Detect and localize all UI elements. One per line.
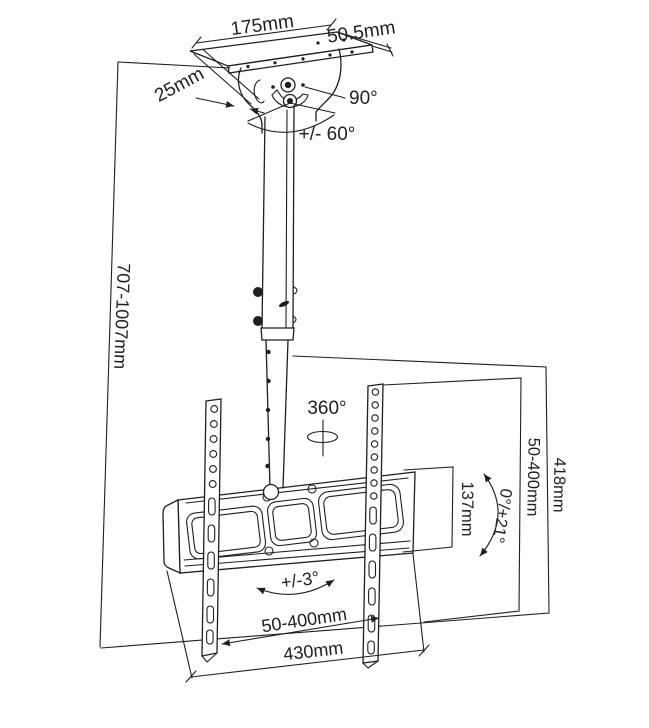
label-bracket-total-height: 418mm <box>550 457 569 512</box>
note-screen-tilt: 0°/+21° <box>480 474 515 556</box>
telescopic-pole <box>253 107 297 500</box>
right-vesa-rail <box>363 384 383 668</box>
label-joint-angle: 90° <box>349 88 378 109</box>
label-vesa-width-range: 50-400mm <box>260 604 348 636</box>
note-joint-angle: 90° <box>305 87 378 109</box>
label-vesa-height-range: 50-400mm <box>523 437 542 516</box>
label-tilt-range-top: +/- 60° <box>299 124 356 145</box>
label-level-adjust-range: +/-3° <box>280 567 321 592</box>
label-screen-tilt-range: 0°/+21° <box>489 487 515 544</box>
label-flange-width: 25mm <box>151 63 207 106</box>
label-rotation-range: 360° <box>307 398 346 419</box>
label-plate-height: 137mm <box>458 481 476 536</box>
dim-vesa-width: 50-400mm <box>222 604 379 644</box>
note-tilt-range-top: +/- 60° <box>299 124 356 145</box>
note-level-adjust: +/-3° <box>257 567 334 594</box>
label-plate-width: 175mm <box>230 11 296 40</box>
dim-vesa-height: 50-400mm <box>523 437 542 516</box>
note-rotation: 360° <box>307 398 346 456</box>
diagram-canvas: 175mm 50.5mm 25mm 90° +/- 60° 707-1007mm… <box>0 0 649 728</box>
dim-bracket-height: 418mm <box>550 457 569 512</box>
left-vesa-rail <box>202 399 221 662</box>
mount-dimension-diagram: 175mm 50.5mm 25mm 90° +/- 60° 707-1007mm… <box>0 0 649 728</box>
label-pole-height-range: 707-1007mm <box>110 263 134 370</box>
